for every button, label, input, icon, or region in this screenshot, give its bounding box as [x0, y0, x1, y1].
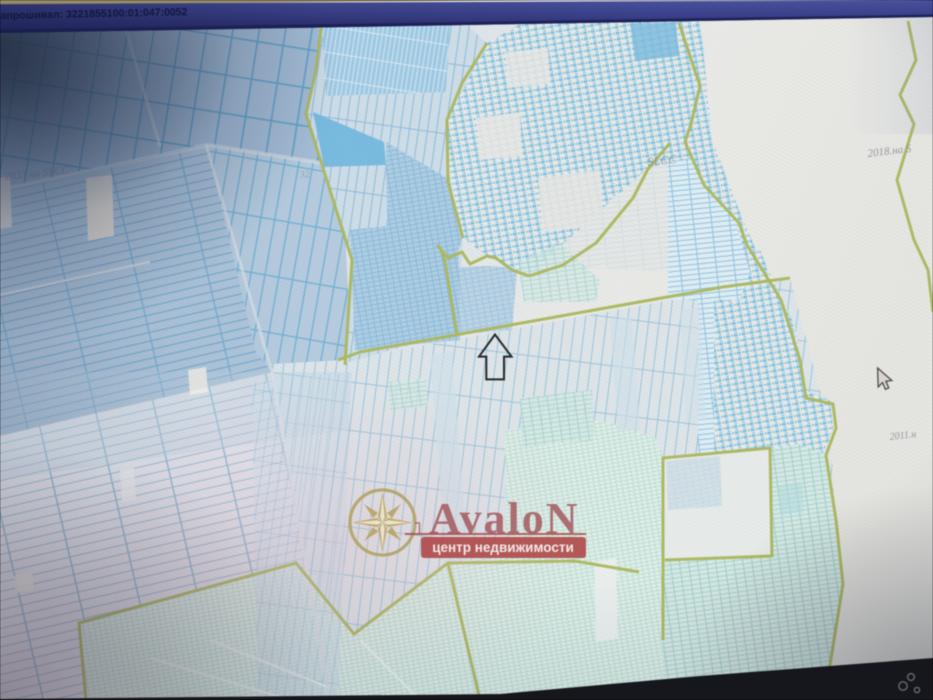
svg-text:центр недвижимости: центр недвижимости — [432, 540, 574, 555]
svg-text:AvaloN: AvaloN — [429, 494, 580, 543]
